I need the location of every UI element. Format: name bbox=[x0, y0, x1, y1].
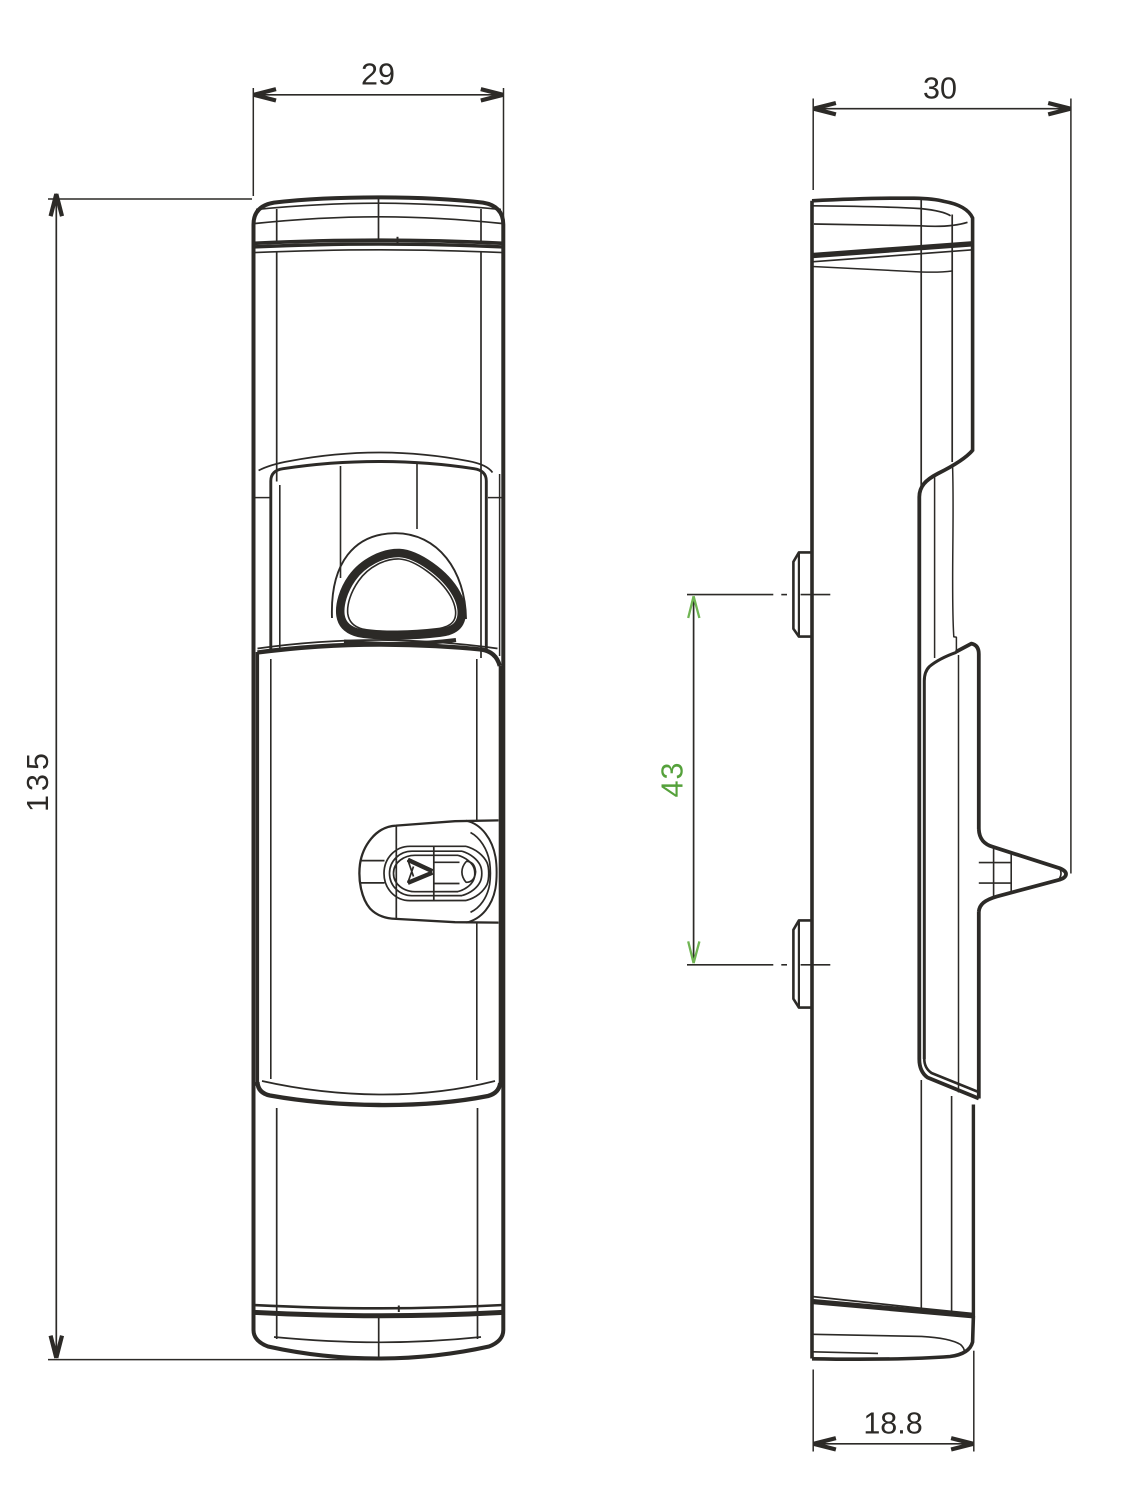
svg-text:29: 29 bbox=[361, 58, 395, 92]
svg-text:43: 43 bbox=[655, 762, 689, 798]
svg-text:135: 135 bbox=[21, 749, 55, 812]
svg-text:30: 30 bbox=[923, 72, 957, 106]
svg-text:18.8: 18.8 bbox=[863, 1407, 922, 1441]
